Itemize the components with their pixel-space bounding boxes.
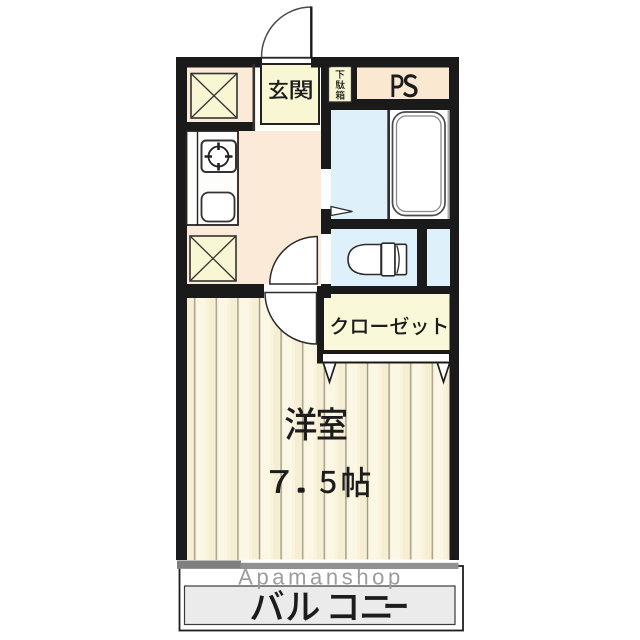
- svg-text:Apamanshop: Apamanshop: [238, 565, 404, 590]
